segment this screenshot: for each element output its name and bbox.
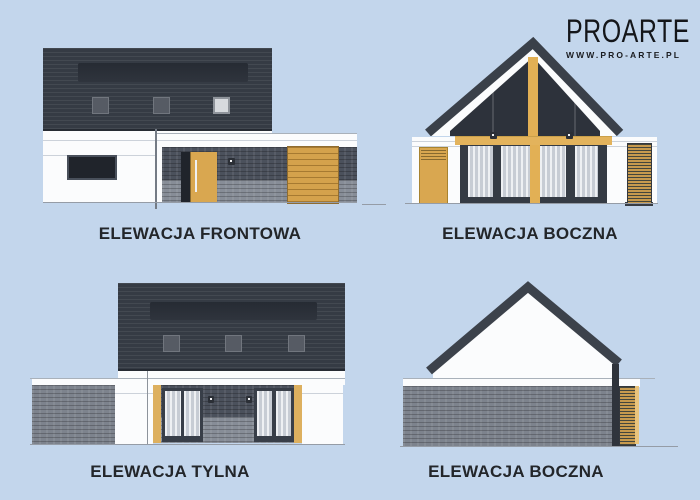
side-top-wood-beam <box>455 136 612 145</box>
front-roof-window <box>213 97 230 114</box>
side-top-wall-line <box>605 141 657 142</box>
rear-wall-line <box>302 393 343 394</box>
front-ground-dash <box>362 204 386 205</box>
front-wall-line <box>43 140 357 141</box>
front-ground-line <box>43 202 357 203</box>
front-roof <box>43 48 272 131</box>
side-top-center-post <box>530 144 540 203</box>
rear-roof-window <box>288 335 305 352</box>
side-top-wall-lamp <box>490 132 497 139</box>
side-top-curtain-panel <box>468 146 493 197</box>
side-top-gable-post <box>528 57 538 136</box>
front-roof-skylight-band <box>78 63 248 82</box>
rear-wall-right <box>302 385 343 445</box>
side-bottom-gable <box>400 280 640 380</box>
front-door-handle <box>195 160 197 192</box>
side-top-curtain-panel <box>540 146 566 197</box>
front-wall-lamp <box>228 158 235 165</box>
rear-door-curtain <box>257 391 272 436</box>
side-top-curtain-panel <box>501 146 530 197</box>
side-top-curtain-panel <box>575 146 598 197</box>
side-top-wall-line <box>412 141 460 142</box>
rear-door-curtain <box>165 391 181 436</box>
rear-porch-wood-trim <box>153 385 161 443</box>
front-roof-window <box>153 97 170 114</box>
side-bottom-wood-strip <box>635 386 639 444</box>
side-bottom-louver-panel <box>619 386 636 446</box>
rear-fascia-left <box>32 378 118 385</box>
side-top-door-vents <box>421 150 446 160</box>
side-bottom-ground-line <box>400 446 678 447</box>
side-top-louver-panel <box>627 143 652 204</box>
rear-wall-lamp <box>246 396 252 403</box>
rear-elevation-label: ELEWACJA TYLNA <box>60 462 280 482</box>
rear-door-curtain <box>276 391 291 436</box>
rear-fascia-line <box>30 378 345 379</box>
side-top-gable <box>420 36 632 136</box>
front-elevation-label: ELEWACJA FRONTOWA <box>48 224 352 244</box>
rear-ground-line <box>30 444 345 445</box>
front-door-sidelight <box>181 152 190 202</box>
front-roof-window <box>92 97 109 114</box>
elevation-drawing-sheet: PROARTE WWW.PRO-ARTE.PL ELEWACJA FRONTOW… <box>0 0 700 500</box>
side-bottom-corner-board <box>612 364 619 446</box>
rear-roof-skylight-band <box>150 302 317 320</box>
rear-roof-window <box>225 335 242 352</box>
side-bottom-elevation-label: ELEWACJA BOCZNA <box>400 462 632 482</box>
rear-porch-wood-trim <box>294 385 302 443</box>
rear-door-curtain <box>184 391 200 436</box>
front-downpipe <box>155 129 157 209</box>
side-top-wall-lamp <box>566 132 573 139</box>
front-flat-roof-edge <box>157 133 357 134</box>
rear-roof-window <box>163 335 180 352</box>
side-bottom-brick-wall <box>403 386 612 446</box>
front-garage-door <box>287 146 339 204</box>
front-window <box>67 155 117 180</box>
rear-wall-lamp <box>208 396 214 403</box>
side-top-elevation-label: ELEWACJA BOCZNA <box>405 224 655 244</box>
rear-garage-brick-wall <box>32 385 115 445</box>
rear-corner-line <box>147 371 148 445</box>
rear-roof <box>118 283 345 371</box>
side-top-ground-line <box>405 203 658 204</box>
